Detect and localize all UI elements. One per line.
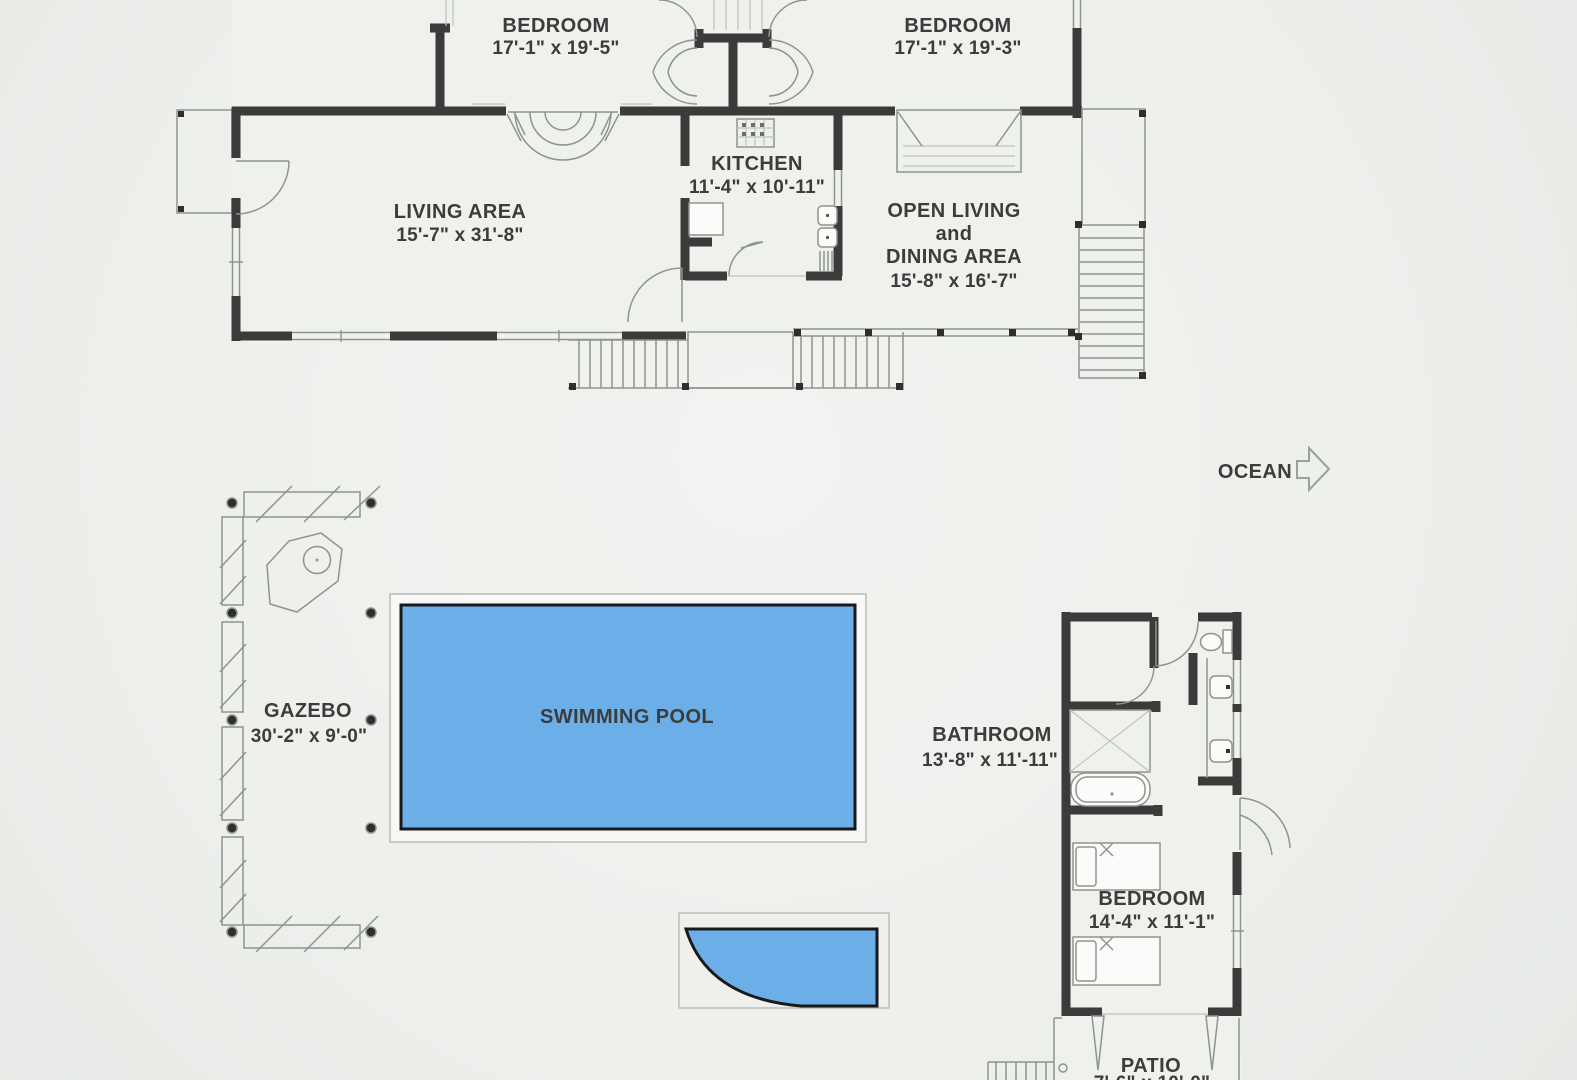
kitchen-counter	[689, 203, 723, 235]
bed-1	[1073, 843, 1160, 890]
bed-2	[1073, 937, 1160, 985]
right-deck-stairs	[1075, 109, 1146, 379]
house-plan: BEDROOM 17'-1" x 19'-5" BEDROOM 17'-1" x…	[177, 0, 1146, 390]
living-area-dims: 15'-7" x 31'-8"	[396, 225, 523, 246]
left-deck	[177, 110, 232, 213]
kitchen-dims: 11'-4" x 10'-11"	[689, 177, 825, 198]
gazebo: GAZEBO 30'-2" x 9'-0"	[220, 486, 380, 952]
spa-water	[686, 929, 877, 1006]
bedroom-left-label: BEDROOM	[502, 15, 609, 37]
guest-suite: BATHROOM 13'-8" x 11'-11" BEDROOM 14'-4"…	[922, 612, 1290, 1016]
open-living-dims: 15'-8" x 16'-7"	[890, 271, 1017, 292]
toilet-tank	[1223, 630, 1232, 653]
bedroom-door-swing	[1240, 815, 1272, 855]
bedroom-right-dims: 17'-1" x 19'-3"	[894, 38, 1021, 59]
spa-pool	[679, 913, 889, 1008]
living-area-label: LIVING AREA	[394, 201, 527, 223]
gazebo-dims: 30'-2" x 9'-0"	[251, 726, 367, 747]
ocean-indicator: OCEAN	[1218, 448, 1329, 490]
swimming-pool: SWIMMING POOL	[390, 594, 866, 842]
bedroom-left-dims: 17'-1" x 19'-5"	[492, 38, 619, 59]
swimming-pool-label: SWIMMING POOL	[540, 706, 714, 728]
open-living-label-1: OPEN LIVING	[887, 200, 1020, 222]
bathroom-dims: 13'-8" x 11'-11"	[922, 750, 1058, 771]
patio-steps	[988, 1062, 1054, 1080]
toilet	[1201, 634, 1222, 651]
guest-bedroom-dims: 14'-4" x 11'-1"	[1089, 912, 1215, 933]
patio: PATIO 7'-6" x 10'-0"	[988, 1014, 1241, 1080]
open-living-label-3: DINING AREA	[886, 246, 1022, 268]
floor-plan-canvas: BEDROOM 17'-1" x 19'-5" BEDROOM 17'-1" x…	[0, 0, 1577, 1080]
gazebo-label: GAZEBO	[264, 700, 352, 722]
open-living-label-2: and	[936, 223, 973, 245]
ocean-label: OCEAN	[1218, 461, 1292, 483]
kitchen-label: KITCHEN	[711, 153, 803, 175]
patio-dims: 7'-6" x 10'-0"	[1094, 1073, 1210, 1080]
ocean-direction-arrow-icon	[1297, 448, 1329, 490]
guest-bedroom-label: BEDROOM	[1098, 888, 1205, 910]
bathroom-label: BATHROOM	[932, 724, 1051, 746]
floor-plan-screenshot: BEDROOM 17'-1" x 19'-5" BEDROOM 17'-1" x…	[0, 0, 1577, 1080]
gazebo-spa	[267, 533, 342, 612]
bedroom-right-label: BEDROOM	[904, 15, 1011, 37]
bathtub	[1071, 773, 1150, 806]
